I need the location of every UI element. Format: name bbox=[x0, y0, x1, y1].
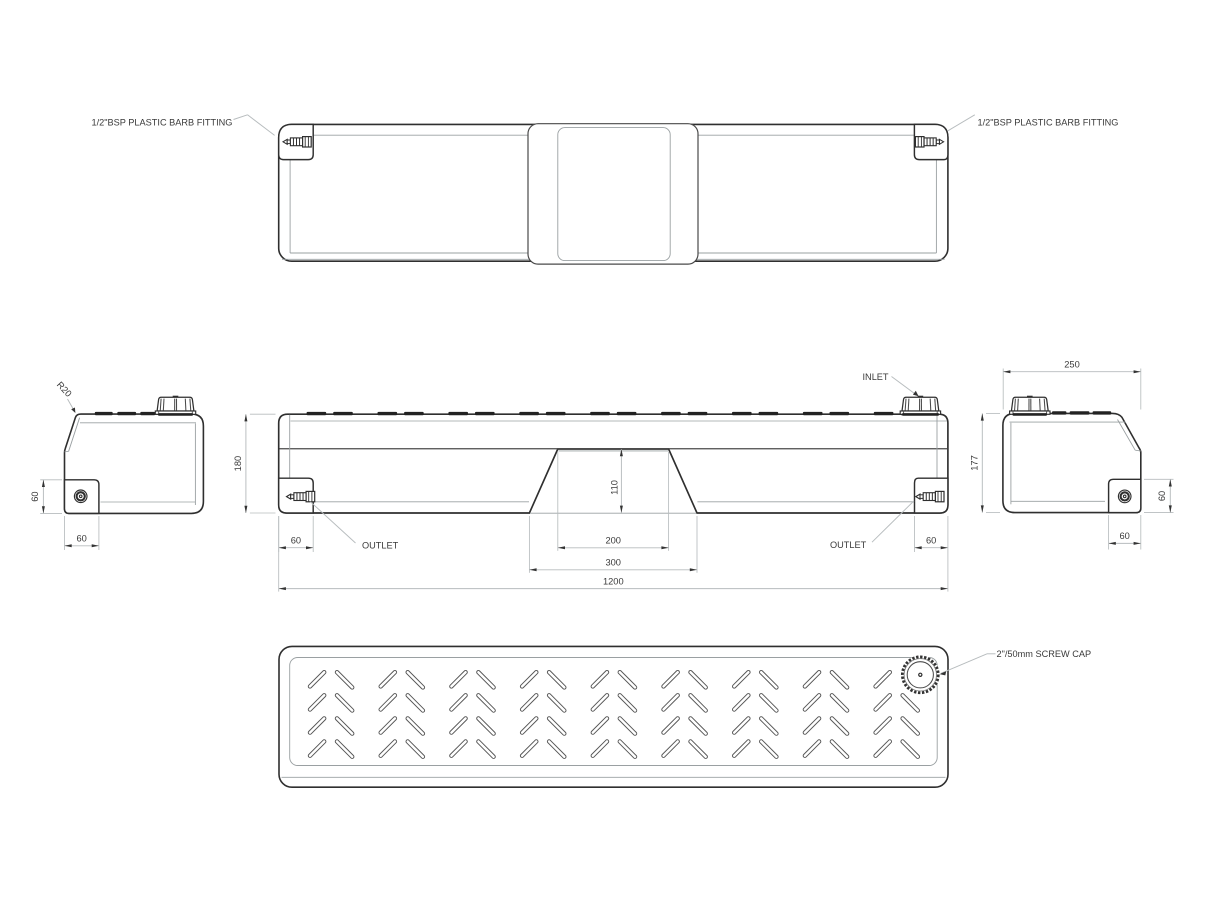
svg-text:1/2"BSP PLASTIC BARB FITTING: 1/2"BSP PLASTIC BARB FITTING bbox=[92, 118, 233, 128]
svg-text:200: 200 bbox=[605, 536, 621, 546]
svg-text:OUTLET: OUTLET bbox=[830, 540, 867, 550]
svg-text:60: 60 bbox=[291, 536, 301, 546]
svg-text:INLET: INLET bbox=[863, 372, 889, 382]
svg-text:110: 110 bbox=[610, 480, 620, 495]
svg-text:60: 60 bbox=[77, 534, 87, 544]
svg-text:177: 177 bbox=[969, 455, 979, 471]
svg-text:OUTLET: OUTLET bbox=[362, 541, 399, 551]
svg-text:180: 180 bbox=[233, 456, 243, 472]
svg-text:60: 60 bbox=[1120, 531, 1130, 541]
svg-text:60: 60 bbox=[1157, 491, 1167, 501]
svg-text:1200: 1200 bbox=[603, 576, 624, 586]
svg-text:2"/50mm SCREW CAP: 2"/50mm SCREW CAP bbox=[997, 649, 1092, 659]
svg-text:250: 250 bbox=[1064, 360, 1080, 370]
svg-text:60: 60 bbox=[30, 491, 40, 501]
svg-text:300: 300 bbox=[605, 558, 621, 568]
svg-text:60: 60 bbox=[926, 536, 936, 546]
svg-text:1/2"BSP PLASTIC BARB FITTING: 1/2"BSP PLASTIC BARB FITTING bbox=[978, 118, 1119, 128]
